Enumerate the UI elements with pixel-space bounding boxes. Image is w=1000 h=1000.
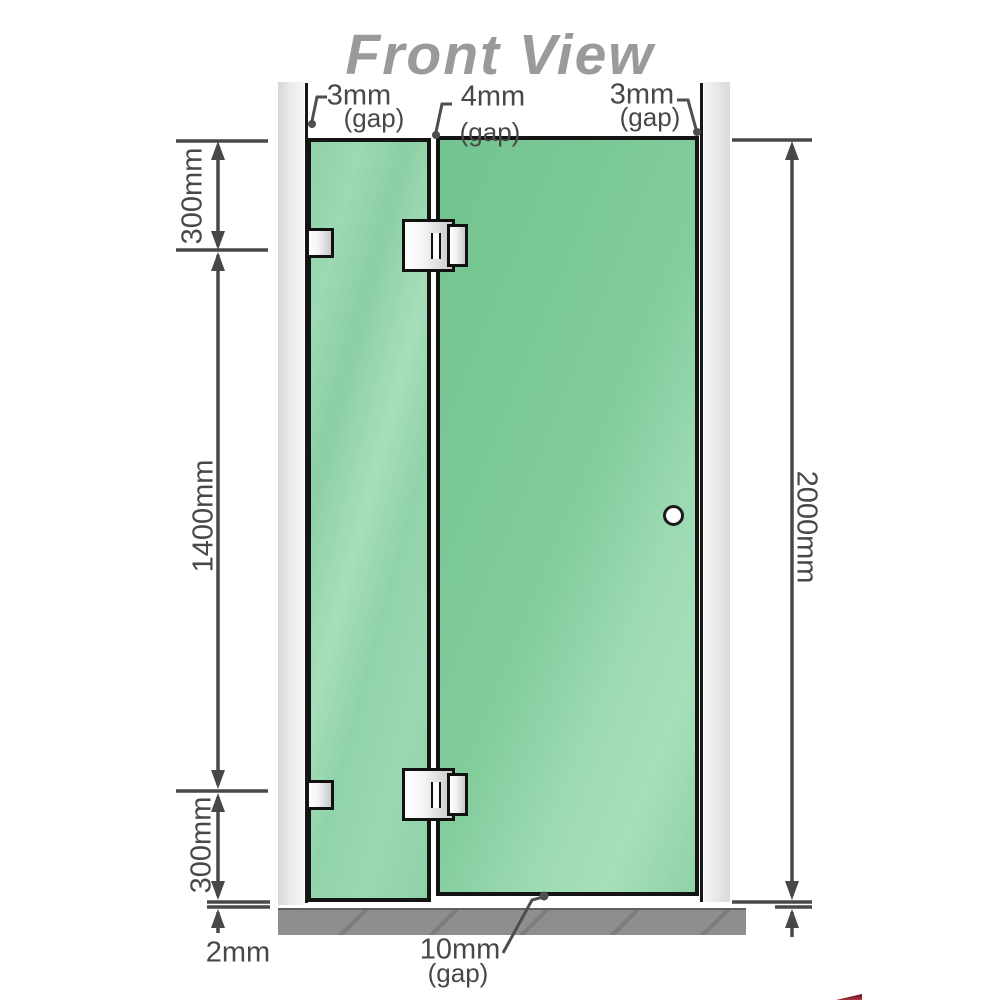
brand-mark-fragment bbox=[836, 994, 862, 1000]
left-wall bbox=[278, 82, 304, 905]
gap-label-right-note: (gap) bbox=[620, 104, 681, 130]
gap-label-center: 4mm bbox=[461, 83, 525, 112]
wall-bracket-top bbox=[306, 228, 334, 258]
hinge-slot bbox=[431, 233, 441, 259]
door-glass-panel bbox=[436, 136, 699, 896]
dim-label-10mm-note: (gap) bbox=[428, 960, 489, 986]
shower-screen-front-view-diagram: Front View bbox=[0, 0, 1000, 1000]
diagram-title: Front View bbox=[0, 22, 1000, 88]
right-wall bbox=[704, 82, 730, 902]
dim-label-300-bottom: 300mm bbox=[188, 797, 217, 894]
right-wall-channel-line bbox=[700, 83, 703, 902]
gap-label-left-note: (gap) bbox=[344, 105, 405, 131]
floor bbox=[278, 908, 746, 935]
wall-bracket-bottom bbox=[306, 780, 334, 810]
dim-label-2000: 2000mm bbox=[792, 471, 821, 584]
dim-label-300-top: 300mm bbox=[179, 148, 208, 245]
hinge-slot bbox=[431, 782, 441, 808]
hinge-plate-right bbox=[447, 224, 468, 267]
hinge-plate-right bbox=[447, 773, 468, 816]
dim-label-1400: 1400mm bbox=[190, 460, 219, 573]
gap-label-center-note: (gap) bbox=[460, 119, 521, 145]
door-knob bbox=[663, 505, 684, 526]
dim-label-2mm: 2mm bbox=[206, 939, 270, 968]
